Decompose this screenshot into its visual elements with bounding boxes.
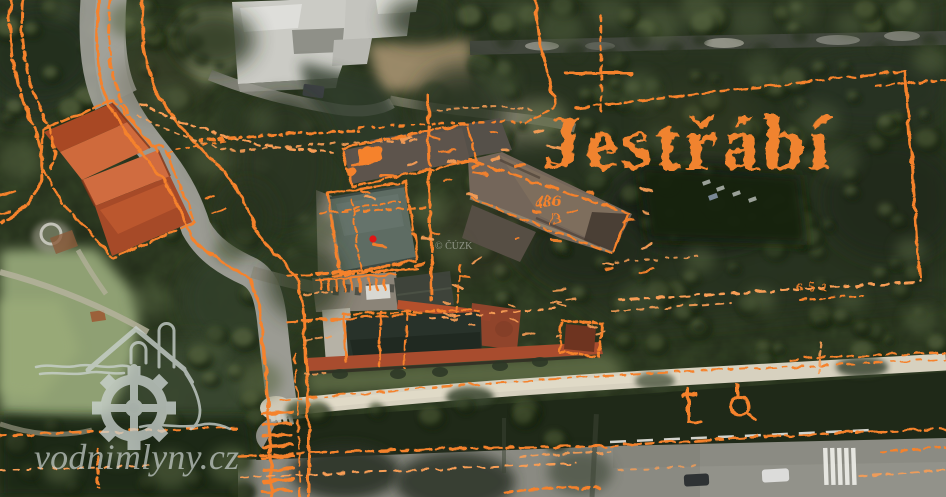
svg-text:/3: /3 xyxy=(547,211,561,228)
svg-text:Jestřábí: Jestřábí xyxy=(543,102,835,186)
svg-text:© ČÚZK: © ČÚZK xyxy=(435,240,473,252)
svg-text:652: 652 xyxy=(796,279,834,294)
svg-text:486: 486 xyxy=(534,190,561,212)
svg-text:vodnimlyny.cz: vodnimlyny.cz xyxy=(34,437,240,477)
